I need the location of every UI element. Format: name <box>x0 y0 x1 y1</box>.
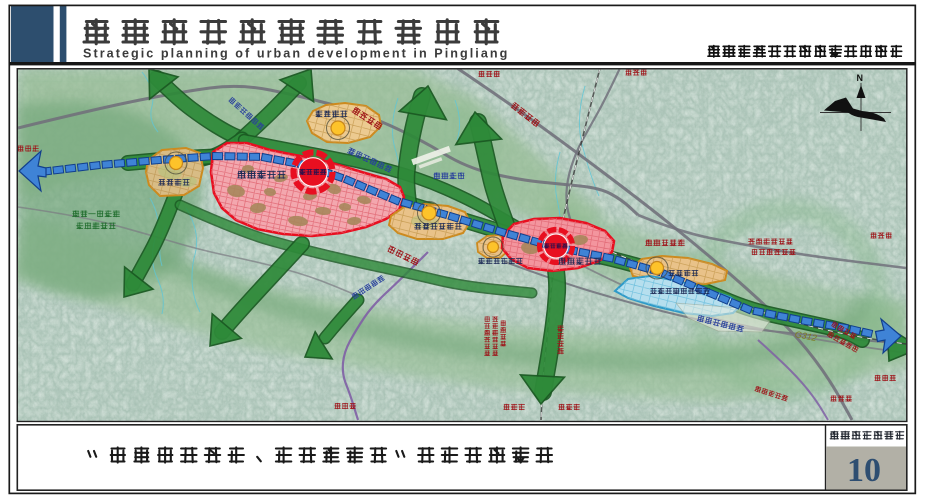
svg-text:N: N <box>857 73 864 83</box>
svg-text:10: 10 <box>847 452 881 489</box>
svg-text:Strategic planning of urban de: Strategic planning of urban development … <box>83 47 509 61</box>
